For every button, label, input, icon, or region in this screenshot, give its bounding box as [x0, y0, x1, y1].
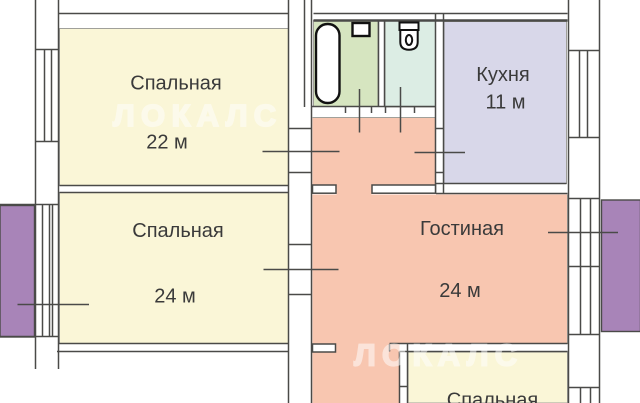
svg-text:24 м: 24 м — [154, 286, 196, 308]
svg-text:ЛОКАЛС: ЛОКАЛС — [354, 338, 524, 373]
svg-text:Спальная: Спальная — [130, 73, 221, 95]
svg-text:Спальная: Спальная — [132, 220, 223, 242]
svg-text:24 м: 24 м — [439, 280, 481, 302]
svg-text:Спальная: Спальная — [447, 390, 538, 403]
svg-text:ЛОКАЛС: ЛОКАЛС — [113, 98, 283, 133]
svg-text:11 м: 11 м — [485, 92, 525, 114]
svg-text:Гостиная: Гостиная — [420, 218, 504, 240]
svg-text:22 м: 22 м — [146, 132, 188, 154]
svg-text:Кухня: Кухня — [476, 64, 530, 86]
